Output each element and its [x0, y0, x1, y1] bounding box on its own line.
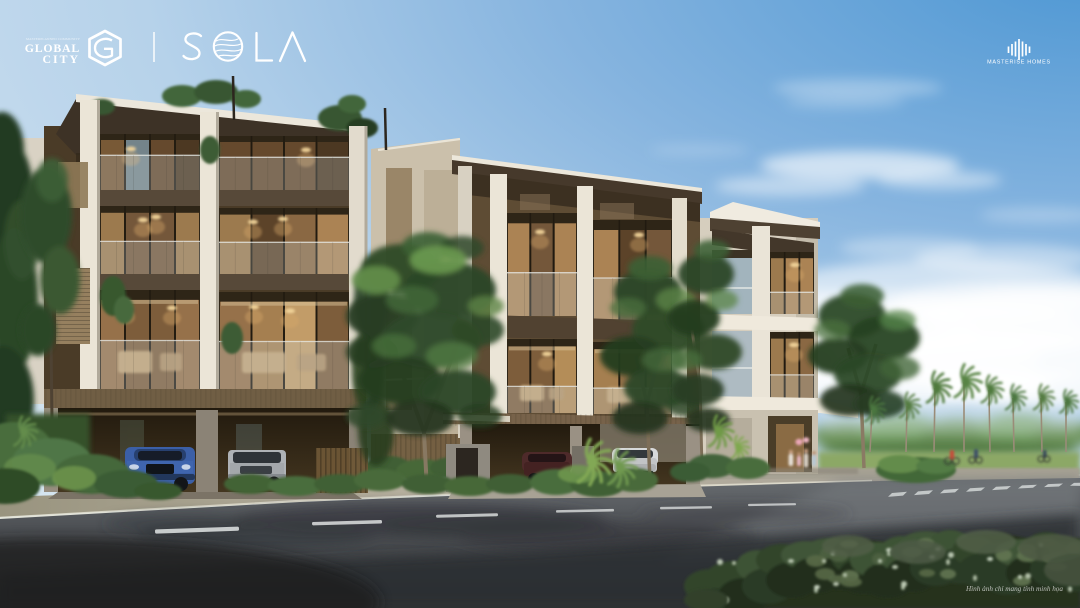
svg-text:MASTERISE HOMES: MASTERISE HOMES [987, 60, 1051, 66]
svg-text:Hình ảnh chỉ mang tính minh họ: Hình ảnh chỉ mang tính minh họa [965, 585, 1063, 593]
svg-text:CITY: CITY [43, 52, 81, 66]
